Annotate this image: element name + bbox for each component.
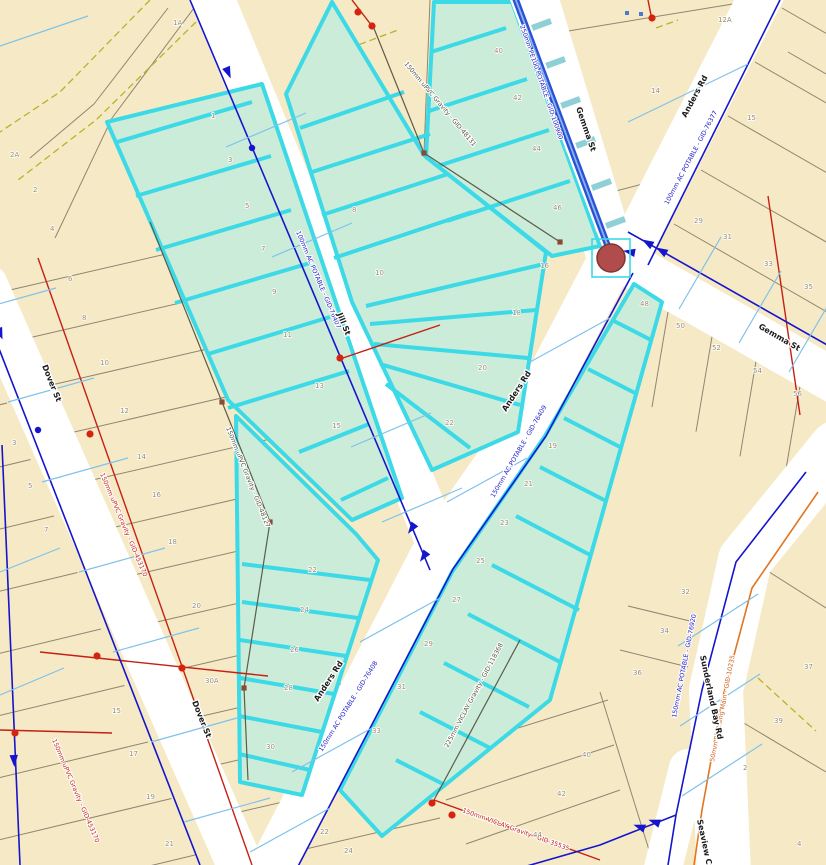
lot-number: 25 <box>476 557 485 565</box>
lot-number: 42 <box>557 790 566 798</box>
lot-number: 28 <box>284 684 293 692</box>
manhole-node-icon[interactable] <box>421 150 426 155</box>
lot-number: 34 <box>660 627 669 635</box>
lot-number: 12A <box>718 16 732 24</box>
sewer-node-icon[interactable] <box>448 811 455 818</box>
lot-number: 24 <box>300 606 309 614</box>
manhole-node-icon[interactable] <box>241 685 246 690</box>
lot-number: 31 <box>723 233 732 241</box>
valve-node-icon[interactable] <box>249 145 255 151</box>
pump-station-icon[interactable] <box>597 244 625 272</box>
manhole-node-icon[interactable] <box>219 399 224 404</box>
lot-number: 52 <box>712 344 721 352</box>
lot-number: 6 <box>68 275 73 283</box>
sewer-node-icon[interactable] <box>336 354 343 361</box>
lot-number: 10 <box>375 269 384 277</box>
lot-number: 19 <box>146 793 155 801</box>
lot-number: 40 <box>582 751 591 759</box>
lot-number: 8 <box>352 206 356 214</box>
lot-number: 24 <box>344 847 353 855</box>
sewer-node-icon[interactable] <box>178 664 185 671</box>
lot-number: 30A <box>205 677 219 685</box>
lot-number: 20 <box>478 364 487 372</box>
lot-number: 10 <box>100 359 109 367</box>
lot-number: 16 <box>540 262 549 270</box>
lot-number: 33 <box>764 260 773 268</box>
lot-number: 29 <box>424 640 433 648</box>
lot-number: 40 <box>494 47 503 55</box>
sewer-node-icon[interactable] <box>86 430 93 437</box>
lot-number: 50 <box>676 322 685 330</box>
sewer-node-icon[interactable] <box>354 8 361 15</box>
lot-number: 2 <box>33 186 37 194</box>
map-canvas[interactable]: 100mm AC POTABLE - GID-76377150mm AC POT… <box>0 0 826 865</box>
fitting-icon <box>625 11 629 15</box>
sewer-node-icon[interactable] <box>93 652 100 659</box>
lot-number: 16 <box>152 491 161 499</box>
lot-number: 37 <box>804 663 813 671</box>
lot-number: 21 <box>165 840 174 848</box>
lot-number: 26 <box>290 646 299 654</box>
lot-number: 15 <box>332 422 341 430</box>
lot-number: 5 <box>28 482 32 490</box>
lot-number: 14 <box>137 453 146 461</box>
lot-number: 5 <box>245 202 249 210</box>
sewer-node-icon[interactable] <box>648 14 655 21</box>
lot-number: 18 <box>512 309 521 317</box>
lot-number: 30 <box>266 743 275 751</box>
lot-number: 7 <box>44 526 48 534</box>
lot-number: 35 <box>804 283 813 291</box>
lot-number: 15 <box>112 707 121 715</box>
sewer-node-icon[interactable] <box>428 799 435 806</box>
lot-number: 2 <box>743 764 747 772</box>
lot-number: 44 <box>533 831 542 839</box>
sewer-node-icon[interactable] <box>368 22 375 29</box>
lot-number: 8 <box>82 314 86 322</box>
lot-number: 22 <box>308 566 317 574</box>
lot-number: 20 <box>192 602 201 610</box>
lot-number: 13 <box>315 382 324 390</box>
lot-number: 12 <box>120 407 129 415</box>
lot-number: 3 <box>12 439 16 447</box>
lot-number: 32 <box>681 588 690 596</box>
lot-number: 31 <box>397 683 406 691</box>
lot-number: 9 <box>272 288 276 296</box>
lot-number: 19 <box>548 442 557 450</box>
lot-number: 21 <box>524 480 533 488</box>
lot-number: 48 <box>640 300 649 308</box>
lot-number: 22 <box>445 419 454 427</box>
valve-node-icon[interactable] <box>35 427 41 433</box>
lot-number: 4 <box>50 225 55 233</box>
lot-number: 44 <box>532 145 541 153</box>
lot-number: 39 <box>774 717 783 725</box>
lot-number: 14 <box>651 87 660 95</box>
lot-number: 42 <box>513 94 522 102</box>
lot-number: 29 <box>694 217 703 225</box>
lot-number: 23 <box>500 519 509 527</box>
lot-number: 27 <box>452 596 461 604</box>
lot-number: 2A <box>10 151 19 159</box>
lot-number: 33 <box>372 727 381 735</box>
sewer-node-icon[interactable] <box>11 729 18 736</box>
lot-number: 46 <box>553 204 562 212</box>
lot-number: 36 <box>633 669 642 677</box>
fitting-icon <box>639 12 643 16</box>
lot-number: 11 <box>283 331 292 339</box>
lot-number: 56 <box>793 390 802 398</box>
lot-number: 22 <box>320 828 329 836</box>
lot-number: 54 <box>753 367 762 375</box>
lot-number: 17 <box>129 750 138 758</box>
lot-number: 18 <box>168 538 177 546</box>
lot-number: 7 <box>261 245 265 253</box>
lot-number: 4 <box>797 840 802 848</box>
lot-number: 3 <box>228 156 232 164</box>
manhole-node-icon[interactable] <box>557 239 562 244</box>
lot-number: 1A <box>173 19 182 27</box>
lot-number: 15 <box>747 114 756 122</box>
lot-number: 1 <box>211 112 215 120</box>
gis-map[interactable]: 100mm AC POTABLE - GID-76377150mm AC POT… <box>0 0 826 865</box>
